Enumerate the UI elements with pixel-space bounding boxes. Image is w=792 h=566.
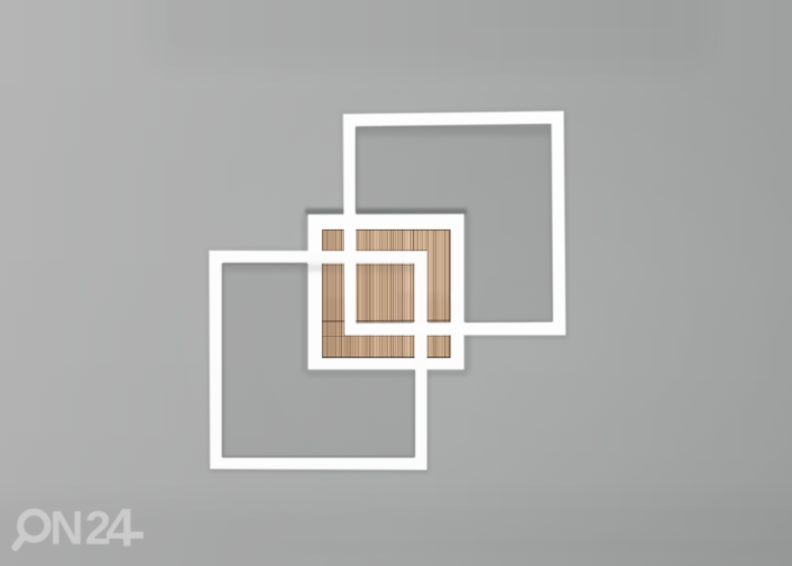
svg-text:N2: N2 (50, 501, 112, 554)
svg-text:4: 4 (106, 498, 136, 558)
